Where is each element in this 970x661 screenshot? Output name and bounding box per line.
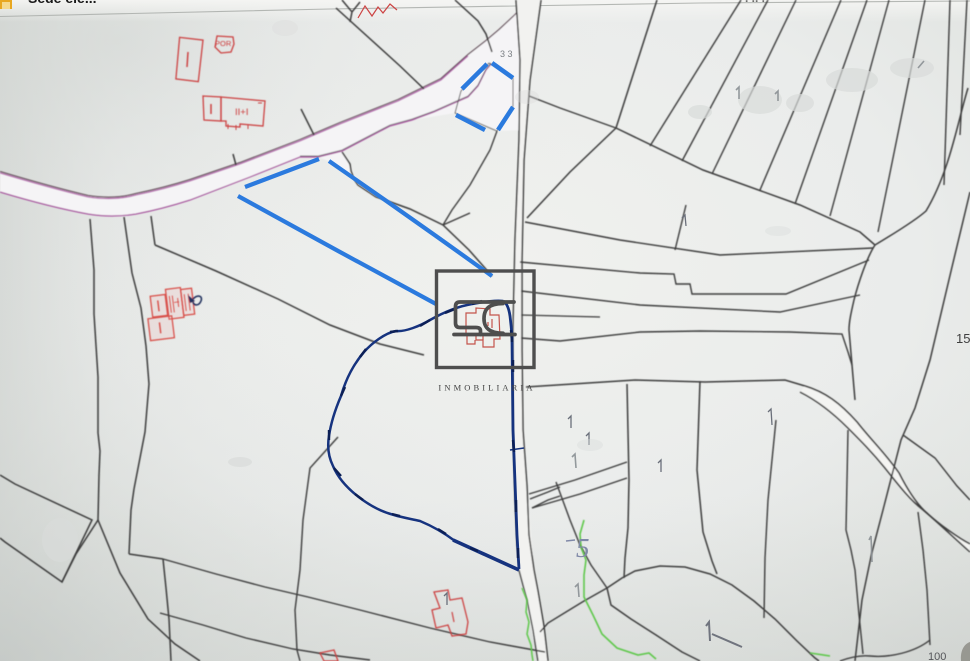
svg-text:INMOBILIARIA: INMOBILIARIA <box>438 383 535 393</box>
svg-text:15: 15 <box>956 331 970 346</box>
svg-text:POR: POR <box>215 39 232 48</box>
svg-text:100: 100 <box>928 651 946 661</box>
svg-text:II+I: II+I <box>235 107 248 118</box>
svg-text:3 3: 3 3 <box>500 49 513 59</box>
svg-text:5: 5 <box>576 533 590 563</box>
svg-text:. .. .: . .. . <box>745 0 765 5</box>
svg-text:Sede ele...: Sede ele... <box>28 0 96 6</box>
